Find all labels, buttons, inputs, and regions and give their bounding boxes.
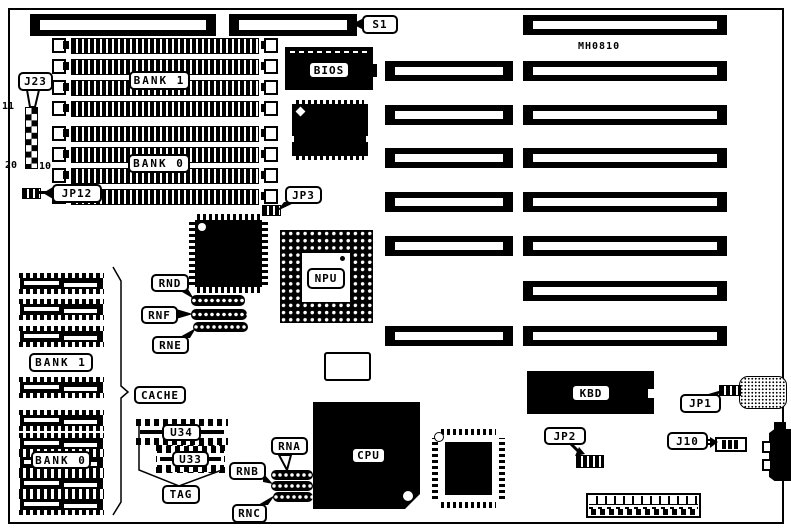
simm-bank0-label: BANK 0 (128, 154, 190, 173)
speaker-pad (739, 376, 787, 409)
power-connector (586, 493, 701, 518)
rnc-label: RNC (232, 504, 267, 523)
keyboard-din-connector (769, 429, 791, 481)
pin1-marker (340, 256, 345, 261)
chipset-plcc-chip (292, 100, 368, 160)
motherboard-diagram: S1 MH0810 BANK 1 BANK 0 J23 11 20 10 JP1… (0, 0, 791, 531)
isa-slot-3-long (523, 105, 727, 125)
isa-slot-4-long (523, 148, 727, 168)
isa-slot-2-ext (385, 61, 513, 81)
pin1-marker (434, 432, 444, 442)
u34-label: U34 (162, 424, 201, 441)
jp12-jumper (22, 188, 41, 199)
rna-resistor-network (271, 470, 313, 480)
cache-ram-chip (19, 410, 104, 431)
npu-socket: NPU (280, 230, 373, 323)
cache-bank1-label: BANK 1 (29, 353, 93, 372)
rnb-label: RNB (229, 462, 266, 480)
bios-label: BIOS (308, 61, 350, 79)
j23-pin10-number: 10 (39, 161, 51, 172)
simm-socket (52, 126, 278, 143)
top-edge-connector-s1 (229, 14, 357, 36)
jp1-label: JP1 (680, 394, 721, 413)
cache-label: CACHE (134, 386, 186, 404)
crystal-oscillator (324, 352, 371, 381)
isa-slot-6-long (523, 236, 727, 256)
controller-qfp-chip (189, 214, 268, 293)
din-connector-pin (762, 459, 772, 471)
rne-label: RNE (152, 336, 189, 354)
isa-slot-4-ext (385, 148, 513, 168)
isa-slot-8-long (523, 326, 727, 346)
bios-chip-notch (371, 64, 377, 77)
u34-chip: U34 (136, 419, 228, 445)
rne-resistor-network (193, 322, 248, 332)
top-edge-connector-1 (30, 14, 216, 36)
cache-ram-chip (19, 494, 104, 515)
simm-socket (52, 101, 278, 118)
cache-bank0-label: BANK 0 (31, 451, 91, 469)
isa-slot-8-ext (385, 326, 513, 346)
jp2-jumper (576, 455, 604, 468)
isa-slot-7-long (523, 281, 727, 301)
rnd-label: RND (151, 274, 189, 292)
j23-pin-header (25, 107, 38, 169)
jp3-jumper (262, 205, 281, 216)
j10-label: J10 (667, 432, 708, 450)
j23-pin11-number: 11 (2, 101, 14, 112)
u33-chip: U33 (157, 446, 224, 472)
pin1-marker (403, 491, 413, 501)
simm-bank1-label: BANK 1 (129, 71, 190, 90)
kbd-chip: KBD (527, 371, 654, 414)
support-plcc-chip (432, 429, 505, 508)
din-connector-pin (762, 441, 772, 453)
cpu-chip: CPU (313, 402, 420, 509)
isa-slot-5-ext (385, 192, 513, 212)
j23-pin20-number: 20 (5, 160, 17, 171)
cache-ram-chip (19, 326, 104, 347)
rnd-resistor-network (191, 295, 245, 306)
npu-label: NPU (307, 268, 345, 289)
isa-slot-3-ext (385, 105, 513, 125)
cache-ram-chip (19, 299, 104, 320)
jp3-label: JP3 (285, 186, 322, 204)
u33-label: U33 (172, 451, 209, 467)
isa-slot-1-long (523, 15, 727, 35)
isa-slot-5-long (523, 192, 727, 212)
j10-jumper (715, 437, 747, 452)
cpu-label: CPU (351, 447, 386, 464)
isa-slot-6-ext (385, 236, 513, 256)
board-part-number: MH0810 (578, 41, 620, 52)
jp1-jumper (719, 385, 741, 396)
isa-slot-2-long (523, 61, 727, 81)
rna-label: RNA (271, 437, 308, 455)
kbd-label: KBD (571, 384, 611, 402)
rnc-resistor-network (273, 492, 313, 502)
simm-socket (52, 38, 278, 55)
rnf-resistor-network (191, 309, 247, 320)
j23-label: J23 (18, 72, 53, 91)
tag-label: TAG (162, 485, 200, 504)
cache-ram-chip (19, 273, 104, 294)
rnf-label: RNF (141, 306, 178, 324)
cache-ram-chip (19, 377, 104, 398)
jp2-label: JP2 (544, 427, 586, 445)
jp12-label: JP12 (52, 184, 102, 203)
pin1-marker (198, 223, 206, 231)
s1-label: S1 (362, 15, 398, 34)
rnb-resistor-network (271, 481, 313, 491)
cache-ram-chip (19, 473, 104, 494)
